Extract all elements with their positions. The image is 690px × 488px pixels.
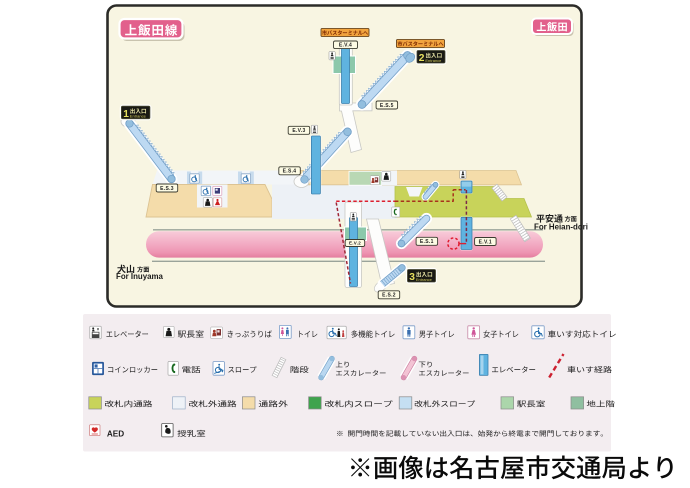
svg-text:E.V.1: E.V.1 [479,239,492,245]
svg-text:AED: AED [107,430,124,439]
svg-text:E.S.4: E.S.4 [283,169,297,175]
svg-text:E.S.3: E.S.3 [160,186,174,192]
svg-text:E.S.5: E.S.5 [380,103,394,109]
svg-text:3: 3 [409,272,415,283]
svg-text:E.S.2: E.S.2 [382,293,396,299]
svg-text:For Heian-dori: For Heian-dori [534,222,588,231]
svg-text:E.V.3: E.V.3 [292,128,305,134]
svg-text:Entrance: Entrance [416,277,433,282]
svg-text:Entrance: Entrance [425,58,442,63]
svg-text:1: 1 [123,109,129,120]
svg-text:Entrance: Entrance [130,114,147,119]
svg-text:For Inuyama: For Inuyama [116,272,164,281]
svg-text:E.V.4: E.V.4 [339,43,352,49]
svg-text:2: 2 [419,53,425,64]
svg-text:E.V.2: E.V.2 [349,241,361,246]
svg-text:E.S.1: E.S.1 [420,239,434,245]
